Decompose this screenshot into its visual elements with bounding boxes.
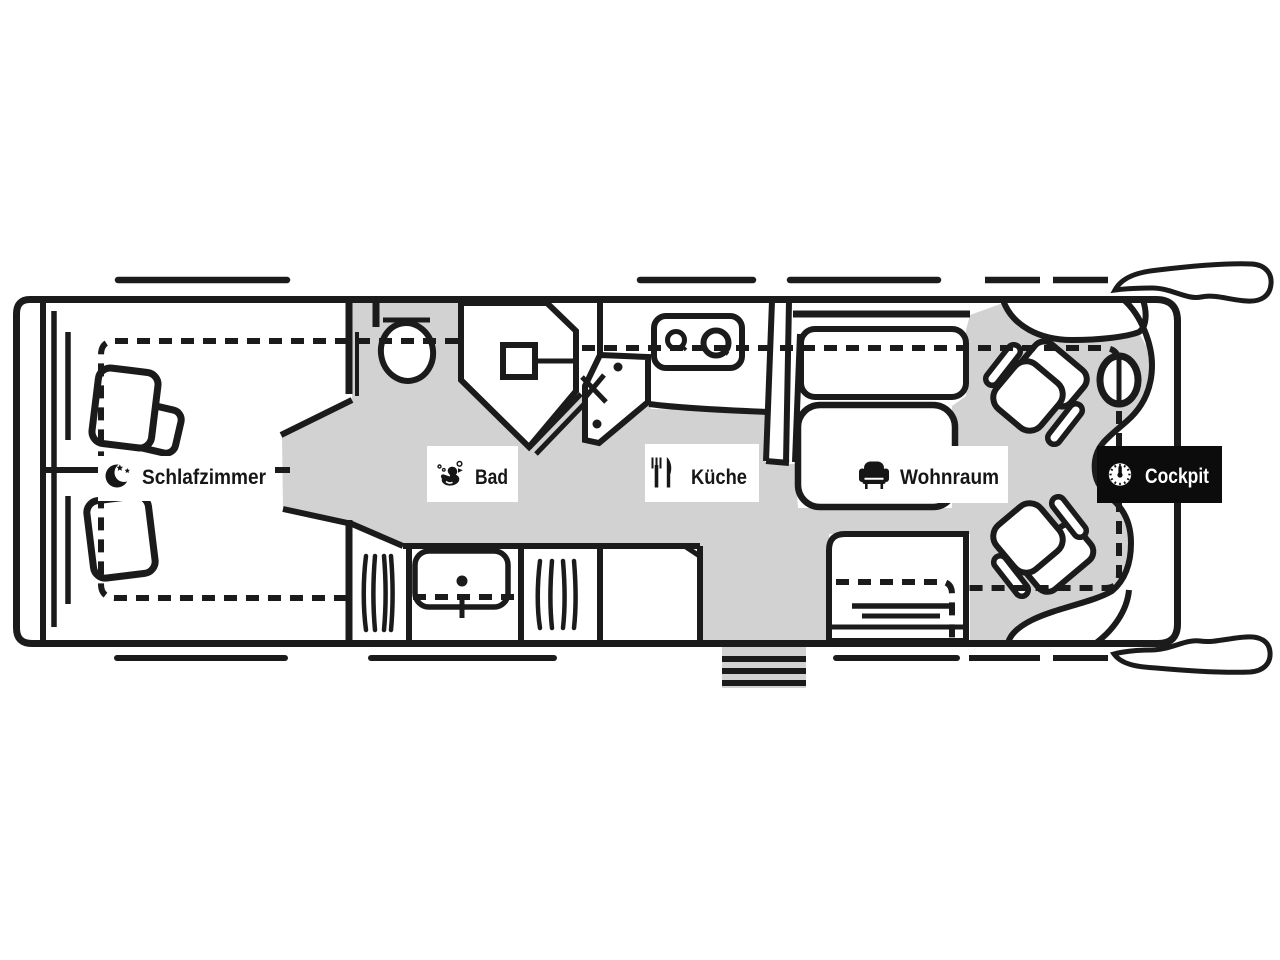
svg-text:Wohnraum: Wohnraum	[900, 466, 999, 489]
svg-text:Schlafzimmer: Schlafzimmer	[142, 466, 266, 489]
svg-text:Küche: Küche	[691, 466, 747, 489]
svg-text:Bad: Bad	[475, 466, 508, 489]
svg-text:Cockpit: Cockpit	[1145, 465, 1209, 488]
